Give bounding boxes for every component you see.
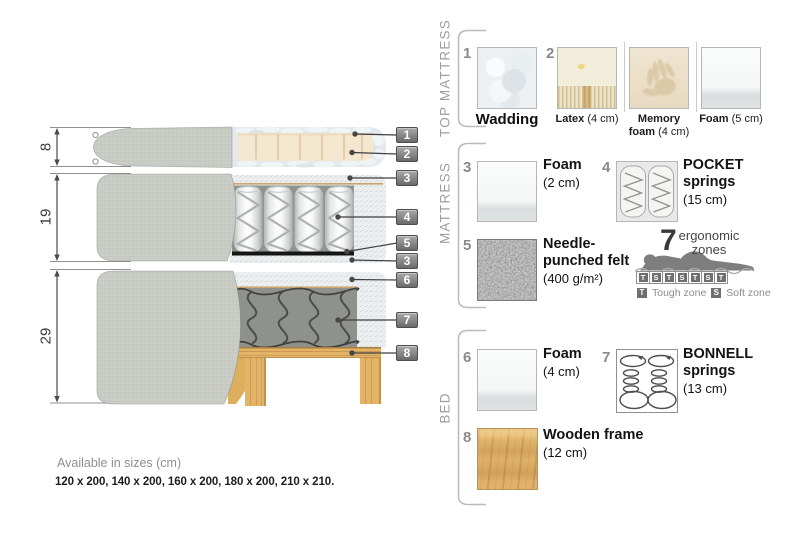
wooden-frame-label: Wooden frame (12 cm) bbox=[543, 427, 653, 460]
item-number-wooden-frame: 8 bbox=[463, 429, 471, 446]
pocket-springs-image bbox=[616, 161, 678, 222]
callout-badge-4: 4 bbox=[396, 209, 418, 225]
latex-label: Latex (4 cm) bbox=[547, 113, 627, 126]
top-mattress-cover bbox=[94, 127, 233, 168]
felt-texture bbox=[478, 240, 536, 300]
callout-badge-6: 6 bbox=[396, 272, 418, 288]
item-number-foam4: 6 bbox=[463, 349, 471, 366]
available-sizes-heading: Available in sizes (cm) bbox=[57, 456, 181, 470]
zone-box: T bbox=[636, 271, 650, 284]
bonnell-springs-size: (13 cm) bbox=[683, 381, 763, 396]
available-sizes-list: 120 x 200, 140 x 200, 160 x 200, 180 x 2… bbox=[55, 476, 334, 488]
callout-badge-8: 8 bbox=[396, 345, 418, 361]
pocket-springs-illustration bbox=[617, 162, 677, 221]
wadding-image bbox=[477, 47, 537, 109]
foam5-name: Foam bbox=[699, 113, 728, 125]
soft-zone-label: Soft zone bbox=[726, 287, 770, 299]
foam2-image bbox=[477, 161, 537, 222]
zone-letter: S bbox=[652, 273, 661, 282]
memory-foam-label: Memory foam (4 cm) bbox=[627, 113, 691, 139]
callout-badge-5: 5 bbox=[396, 235, 418, 251]
zone-box: T bbox=[714, 271, 728, 284]
pocket-springs-size: (15 cm) bbox=[683, 192, 758, 207]
memory-foam-size: (4 cm) bbox=[658, 126, 689, 138]
tough-zone-chip: T bbox=[637, 288, 647, 298]
zone-box: T bbox=[662, 271, 676, 284]
section-title-bed: BED bbox=[438, 392, 453, 423]
felt-layer-line bbox=[232, 252, 354, 256]
bonnell-springs-illustration bbox=[617, 350, 677, 412]
felt-image bbox=[477, 239, 537, 301]
ergonomic-zones-label: ergonomic zones bbox=[677, 229, 741, 257]
top-mattress-section bbox=[93, 127, 386, 168]
bonnell-springs-name: BONNELL springs bbox=[683, 346, 763, 380]
dimension-top-mattress: 8 bbox=[38, 143, 55, 151]
dimension-mattress: 19 bbox=[38, 209, 55, 226]
section-title-mattress: MATTRESS bbox=[438, 162, 453, 244]
bonnell-springs-image bbox=[616, 349, 678, 413]
zone-box: T bbox=[688, 271, 702, 284]
soft-zone-chip: S bbox=[711, 288, 721, 298]
zone-box: S bbox=[649, 271, 663, 284]
zone-box: S bbox=[675, 271, 689, 284]
zone-letter: T bbox=[639, 273, 648, 282]
callout-badge-2: 2 bbox=[396, 146, 418, 162]
item-number-wadding: 1 bbox=[463, 45, 471, 62]
hand-imprint-illustration bbox=[630, 48, 688, 108]
foam5-image bbox=[701, 47, 761, 109]
item-number-felt: 5 bbox=[463, 237, 471, 254]
tough-zone-label: Tough zone bbox=[652, 287, 706, 299]
felt-name: Needle-punched felt bbox=[543, 236, 631, 270]
callout-badge-1: 1 bbox=[396, 127, 418, 143]
wadding-label: Wadding bbox=[467, 111, 547, 128]
dimension-bed: 29 bbox=[38, 328, 55, 345]
pocket-springs-name: POCKET springs bbox=[683, 157, 758, 191]
panel-divider bbox=[624, 42, 625, 112]
foam5-size: (5 cm) bbox=[732, 113, 763, 125]
zone-letter: T bbox=[691, 273, 700, 282]
ergonomic-zones-count: 7 bbox=[660, 226, 677, 256]
foam4-image bbox=[477, 349, 537, 411]
item-number-bonnell: 7 bbox=[602, 349, 610, 366]
zone-box: S bbox=[701, 271, 715, 284]
mattress-section bbox=[97, 174, 386, 263]
felt-label: Needle-punched felt (400 g/m²) bbox=[543, 236, 631, 286]
bed-construction-infographic: 8 19 29 1 2 3 4 5 3 6 7 8 TOP MATTRESS M… bbox=[0, 0, 800, 533]
latex-size: (4 cm) bbox=[587, 113, 618, 125]
mattress-cover bbox=[97, 174, 236, 261]
ergonomic-zone-row: T S T S T S T bbox=[636, 271, 728, 284]
latex-name: Latex bbox=[556, 113, 585, 125]
panel-divider bbox=[696, 42, 697, 112]
foam5-label: Foam (5 cm) bbox=[691, 113, 771, 126]
item-number-foam2: 3 bbox=[463, 159, 471, 176]
foam4-size: (4 cm) bbox=[543, 364, 613, 379]
wooden-frame-image bbox=[477, 428, 538, 490]
wooden-frame-name: Wooden frame bbox=[543, 427, 653, 444]
foam2-size: (2 cm) bbox=[543, 175, 613, 190]
memory-foam-image bbox=[629, 47, 689, 109]
callout-badge-3b: 3 bbox=[396, 253, 418, 269]
dimension-arrows bbox=[54, 128, 59, 403]
wooden-frame bbox=[228, 347, 381, 406]
pocket-springs-label: POCKET springs (15 cm) bbox=[683, 157, 758, 207]
felt-size: (400 g/m²) bbox=[543, 271, 631, 286]
zone-letter: T bbox=[717, 273, 726, 282]
bonnell-springs-label: BONNELL springs (13 cm) bbox=[683, 346, 763, 396]
zone-letter: S bbox=[704, 273, 713, 282]
zone-letter: T bbox=[665, 273, 674, 282]
section-title-top-mattress: TOP MATTRESS bbox=[438, 19, 453, 137]
wooden-frame-size: (12 cm) bbox=[543, 445, 653, 460]
zone-letter: S bbox=[678, 273, 687, 282]
item-number-latex: 2 bbox=[546, 45, 554, 62]
zone-legend: T Tough zone S Soft zone bbox=[637, 287, 771, 299]
item-number-pocket-springs: 4 bbox=[602, 159, 610, 176]
callout-badge-7: 7 bbox=[396, 312, 418, 328]
callout-badge-3: 3 bbox=[396, 170, 418, 186]
bed-section bbox=[97, 271, 386, 406]
latex-image bbox=[557, 47, 617, 109]
bed-cover bbox=[97, 271, 240, 404]
